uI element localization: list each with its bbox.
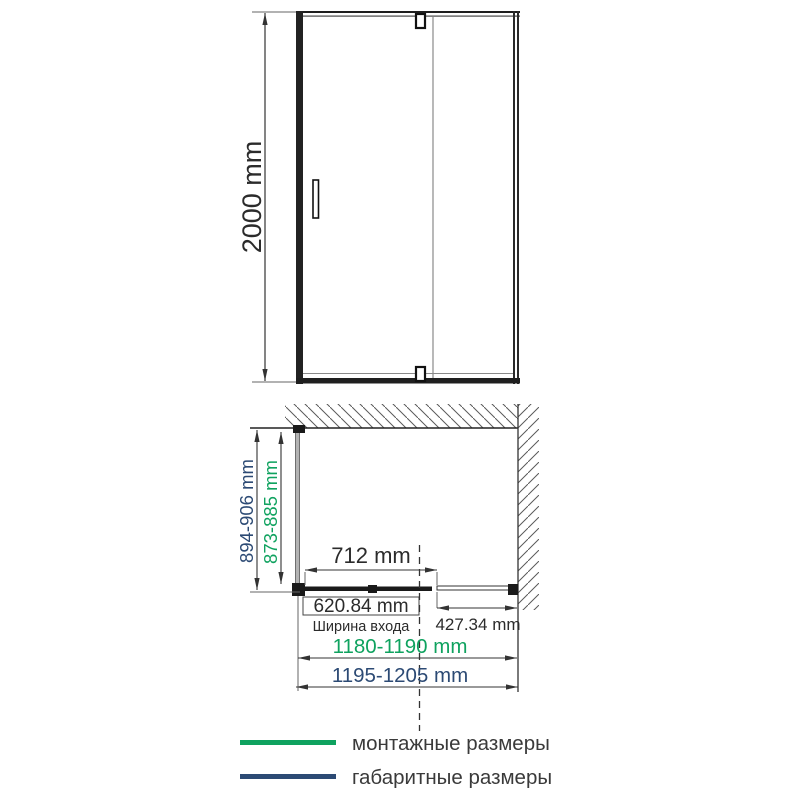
left-wall-profile <box>296 11 303 384</box>
bottom-hinge-icon <box>416 367 425 381</box>
mounting-line-swatch <box>240 740 336 745</box>
bottom-threshold-line <box>303 373 513 374</box>
entrance-width-caption: Ширина входа <box>313 619 411 635</box>
door-handle-icon <box>313 180 319 218</box>
legend-overall-label: габаритные размеры <box>352 766 552 789</box>
shower-door-technical-drawing: 2000 mm 894-906 mm 873-885 mm <box>0 0 800 800</box>
fixed-panel-width-dimension: 427.34 mm <box>435 592 520 634</box>
height-dimension: 2000 mm <box>237 12 296 382</box>
mounting-width-label: 1180-1190 mm <box>333 635 468 658</box>
overall-width-label: 1195-1205 mm <box>332 664 468 687</box>
entrance-width-dimension: 620.84 mm Ширина входа <box>303 596 419 635</box>
bottom-frame-bar <box>296 378 520 384</box>
wall-profile-block-right <box>508 584 518 595</box>
top-frame-inner-line <box>296 16 520 17</box>
pivot-width-dimension: 712 mm <box>305 543 437 585</box>
mounting-depth-label: 873-885 mm <box>260 460 281 564</box>
mounting-width-dimension: 1180-1190 mm <box>298 635 517 658</box>
height-dimension-label: 2000 mm <box>237 141 267 254</box>
front-elevation-view: 2000 mm <box>237 11 520 384</box>
door-pivot-block <box>368 585 377 593</box>
entrance-width-label: 620.84 mm <box>313 596 408 617</box>
right-wall-hatch <box>518 404 539 610</box>
corner-post-block <box>292 583 305 596</box>
pivot-width-label: 712 mm <box>331 543 410 568</box>
top-hinge-icon <box>416 14 425 28</box>
side-glass-panel-plan <box>296 430 300 587</box>
plan-view: 894-906 mm 873-885 mm 712 mm 620.84 mm Ш… <box>236 404 539 731</box>
mounting-depth-dimension: 873-885 mm <box>260 432 281 584</box>
right-wall-profile-inner-line <box>513 11 515 384</box>
legend: монтажные размеры габаритные размеры <box>240 732 552 789</box>
legend-mounting-label: монтажные размеры <box>352 732 550 755</box>
right-wall-profile-outer-line <box>517 11 519 384</box>
fixed-panel-width-label: 427.34 mm <box>435 615 520 634</box>
top-wall-hatch <box>285 404 518 428</box>
wall-profile-block-top <box>293 425 305 433</box>
top-frame-outer-line <box>296 11 520 13</box>
drawing-canvas: 2000 mm 894-906 mm 873-885 mm <box>0 0 800 800</box>
overall-width-dimension: 1195-1205 mm <box>296 664 518 687</box>
overall-line-swatch <box>240 774 336 779</box>
overall-depth-label: 894-906 mm <box>236 459 257 563</box>
fixed-glass-panel-plan <box>437 586 512 590</box>
